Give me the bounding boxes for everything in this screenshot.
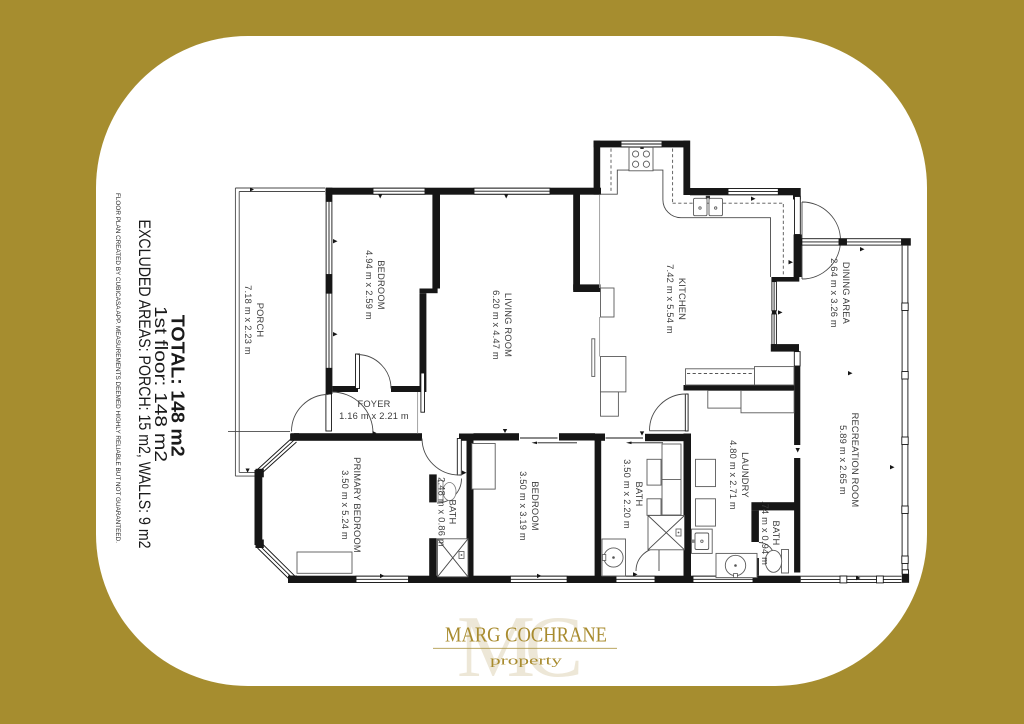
svg-text:FLOOR PLAN CREATED BY CUBICASA: FLOOR PLAN CREATED BY CUBICASA APP. MEAS… <box>114 193 121 543</box>
svg-text:3.50 m x 2.20 m: 3.50 m x 2.20 m <box>622 459 632 529</box>
svg-text:2.48 m x 0.86 m: 2.48 m x 0.86 m <box>437 477 447 547</box>
svg-text:4.94 m x 2.59 m: 4.94 m x 2.59 m <box>364 250 374 320</box>
svg-text:LAUNDRY: LAUNDRY <box>740 452 750 498</box>
svg-text:BATH: BATH <box>448 500 458 525</box>
svg-text:M: M <box>457 599 535 696</box>
svg-text:KITCHEN: KITCHEN <box>677 278 687 320</box>
svg-text:C: C <box>525 599 584 696</box>
svg-text:3.50 m x 3.19 m: 3.50 m x 3.19 m <box>518 471 528 541</box>
svg-text:7.42 m x 5.54 m: 7.42 m x 5.54 m <box>665 264 675 334</box>
svg-text:3.50 m x 5.24 m: 3.50 m x 5.24 m <box>340 470 350 540</box>
svg-text:PRIMARY BEDROOM: PRIMARY BEDROOM <box>352 457 362 553</box>
svg-text:RECREATION ROOM: RECREATION ROOM <box>850 413 860 508</box>
svg-text:property: property <box>490 653 563 668</box>
svg-text:PORCH: PORCH <box>255 303 265 338</box>
svg-text:MARG COCHRANE: MARG COCHRANE <box>445 623 607 647</box>
svg-text:5.89 m x 2.65 m: 5.89 m x 2.65 m <box>838 425 848 495</box>
svg-text:4.80 m x 2.71 m: 4.80 m x 2.71 m <box>728 440 738 510</box>
svg-text:7.18 m x 2.23 m: 7.18 m x 2.23 m <box>243 285 253 355</box>
svg-text:BEDROOM: BEDROOM <box>376 260 386 309</box>
svg-text:BEDROOM: BEDROOM <box>530 481 540 530</box>
svg-text:1.16 m x 2.21 m: 1.16 m x 2.21 m <box>339 411 409 421</box>
svg-text:BATH: BATH <box>634 482 644 507</box>
svg-text:BATH: BATH <box>771 521 781 546</box>
svg-text:6.20 m x 4.47 m: 6.20 m x 4.47 m <box>491 290 501 360</box>
svg-text:DINING AREA: DINING AREA <box>841 262 851 325</box>
svg-text:FOYER: FOYER <box>357 399 390 409</box>
svg-text:LIVING ROOM: LIVING ROOM <box>503 293 513 357</box>
svg-text:.74 m x 0.94 m: .74 m x 0.94 m <box>760 501 770 565</box>
svg-text:2.64 m x 3.26 m: 2.64 m x 3.26 m <box>829 258 839 328</box>
svg-text:EXCLUDED AREAS: PORCH: 15 m2,: EXCLUDED AREAS: PORCH: 15 m2, WALLS: 9 m… <box>135 220 154 549</box>
